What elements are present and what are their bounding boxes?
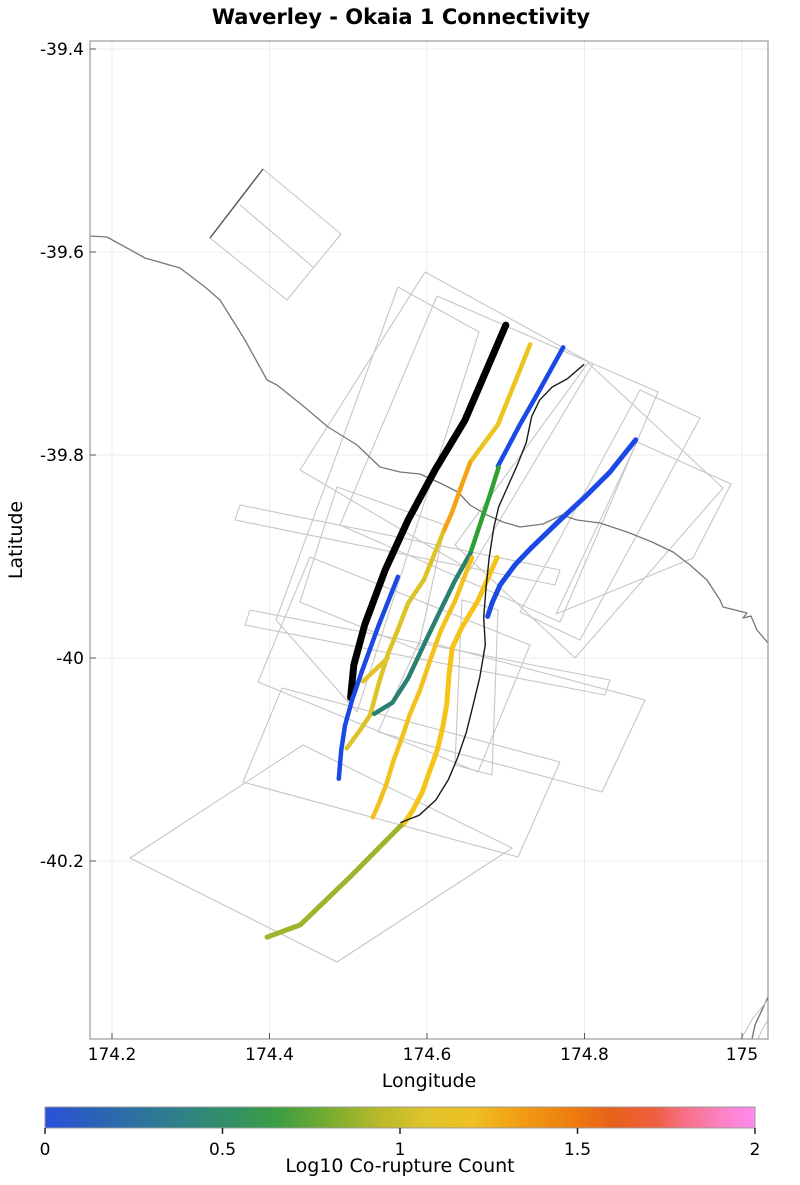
- x-tick-label: 174.4: [245, 1045, 294, 1065]
- colorbar-tick-label: 0.5: [209, 1140, 236, 1160]
- colorbar-layer: 00.511.52: [40, 1107, 761, 1160]
- y-tick-label: -39.4: [40, 40, 84, 60]
- fault-trace-olive-southwest-diagonal: [267, 826, 401, 938]
- fault-surface-outline: [455, 363, 723, 658]
- coastline: [90, 236, 768, 643]
- fault-surface-outline: [243, 688, 560, 857]
- fault-trace-orange-mid: [443, 462, 471, 533]
- y-tick-label: -39.6: [40, 243, 84, 263]
- nw-rect-divider: [240, 205, 313, 267]
- colorbar-tick-label: 2: [750, 1140, 761, 1160]
- fault-surface-outline: [520, 390, 700, 640]
- nw-rect-dark-trace: [210, 169, 263, 238]
- fault-surface-outline: [130, 745, 512, 962]
- basemap-layer: [90, 169, 768, 1039]
- fault-trace-blue-northeast: [498, 347, 563, 466]
- fault-surface-outline: [378, 640, 645, 792]
- map-plot: 174.2174.4174.6174.8175-39.4-39.6-39.8-4…: [0, 0, 800, 1185]
- x-axis-label: Longitude: [382, 1070, 477, 1092]
- corner-coast-light-2: [758, 1020, 768, 1039]
- x-tick-label: 174.6: [403, 1045, 452, 1065]
- x-tick-label: 174.2: [88, 1045, 137, 1065]
- fault-trace-gold-upper: [470, 344, 530, 462]
- colorbar-gradient: [45, 1107, 755, 1128]
- y-tick-label: -40.2: [40, 852, 84, 872]
- chart-title: Waverley - Okaia 1 Connectivity: [212, 5, 591, 29]
- colorbar-label: Log10 Co-rupture Count: [285, 1155, 514, 1177]
- y-tick-label: -39.8: [40, 446, 84, 466]
- fault-trace-yellow-central: [373, 558, 472, 818]
- figure-canvas: 174.2174.4174.6174.8175-39.4-39.6-39.8-4…: [0, 0, 800, 1185]
- fault-trace-green-mid: [470, 467, 498, 553]
- x-tick-label: 175: [726, 1045, 758, 1065]
- fault-surface-outline: [556, 442, 731, 614]
- tick-labels-layer: 174.2174.4174.6174.8175-39.4-39.6-39.8-4…: [40, 40, 758, 1065]
- y-axis-label: Latitude: [5, 501, 27, 579]
- colorbar-tick-label: 0: [40, 1140, 51, 1160]
- fault-surface-outline: [300, 487, 445, 650]
- y-tick-label: -40: [56, 649, 84, 669]
- colorbar-tick-label: 1.5: [564, 1140, 591, 1160]
- x-tick-label: 174.8: [560, 1045, 609, 1065]
